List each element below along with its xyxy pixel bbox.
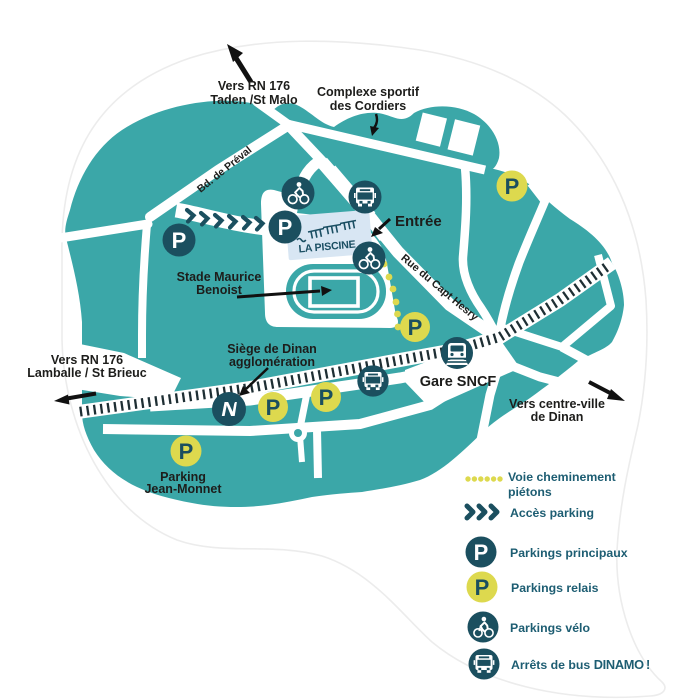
svg-text:Vers RN 176: Vers RN 176 bbox=[218, 79, 290, 93]
svg-text:P: P bbox=[266, 395, 281, 420]
svg-text:P: P bbox=[278, 215, 293, 240]
svg-text:Parkings relais: Parkings relais bbox=[511, 581, 599, 595]
svg-text:P: P bbox=[474, 540, 489, 565]
svg-text:Gare SNCF: Gare SNCF bbox=[420, 374, 497, 390]
svg-text:P: P bbox=[319, 385, 334, 410]
svg-text:des Cordiers: des Cordiers bbox=[330, 99, 406, 113]
svg-text:Siège de Dinan: Siège de Dinan bbox=[227, 342, 317, 356]
svg-text:agglomération: agglomération bbox=[229, 355, 315, 369]
svg-text:Jean-Monnet: Jean-Monnet bbox=[144, 482, 222, 496]
svg-text:Taden /St Malo: Taden /St Malo bbox=[210, 93, 298, 107]
svg-text:Benoist: Benoist bbox=[196, 283, 243, 297]
svg-text:Vers RN 176: Vers RN 176 bbox=[51, 353, 123, 367]
svg-text:P: P bbox=[172, 228, 187, 253]
svg-text:de Dinan: de Dinan bbox=[531, 410, 584, 424]
svg-text:Parkings principaux: Parkings principaux bbox=[510, 546, 628, 560]
svg-text:Complexe sportif: Complexe sportif bbox=[317, 85, 420, 99]
svg-text:Stade Maurice: Stade Maurice bbox=[177, 270, 262, 284]
svg-text:Entrée: Entrée bbox=[395, 213, 442, 230]
svg-text:P: P bbox=[179, 439, 194, 464]
svg-text:P: P bbox=[505, 174, 520, 199]
svg-text:Accès parking: Accès parking bbox=[510, 506, 594, 520]
svg-text:P: P bbox=[475, 575, 490, 600]
svg-text:Voie cheminement: Voie cheminement bbox=[508, 470, 616, 484]
svg-text:Arrêts de bus DINAMO !: Arrêts de bus DINAMO ! bbox=[511, 657, 650, 672]
svg-text:piétons: piétons bbox=[508, 485, 552, 499]
svg-text:Parkings vélo: Parkings vélo bbox=[510, 621, 590, 635]
svg-text:P: P bbox=[408, 315, 423, 340]
svg-text:Vers centre-ville: Vers centre-ville bbox=[509, 397, 605, 411]
svg-text:Lamballe / St Brieuc: Lamballe / St Brieuc bbox=[27, 366, 147, 380]
